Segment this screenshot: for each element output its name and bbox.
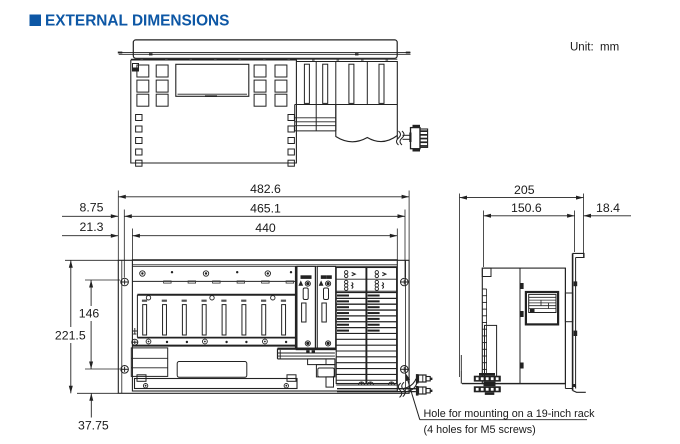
- svg-text:8.75: 8.75: [80, 201, 104, 215]
- svg-text:150.6: 150.6: [511, 201, 542, 215]
- svg-text:465.1: 465.1: [250, 202, 281, 216]
- svg-text:205: 205: [514, 183, 535, 197]
- svg-text:EXTERNAL DIMENSIONS: EXTERNAL DIMENSIONS: [45, 13, 229, 30]
- svg-text:146: 146: [79, 307, 100, 321]
- svg-text:21.3: 21.3: [80, 220, 104, 234]
- svg-text:37.75: 37.75: [78, 419, 109, 433]
- svg-text:Unit: mm: Unit: mm: [570, 42, 619, 54]
- svg-text:482.6: 482.6: [250, 182, 281, 196]
- svg-text:440: 440: [255, 221, 276, 235]
- svg-text:Hole for mounting on a 19-inch: Hole for mounting on a 19-inch rack: [424, 408, 596, 420]
- svg-text:(4 holes for M5 screws): (4 holes for M5 screws): [424, 424, 536, 436]
- svg-text:18.4: 18.4: [596, 201, 620, 215]
- svg-text:221.5: 221.5: [55, 328, 86, 342]
